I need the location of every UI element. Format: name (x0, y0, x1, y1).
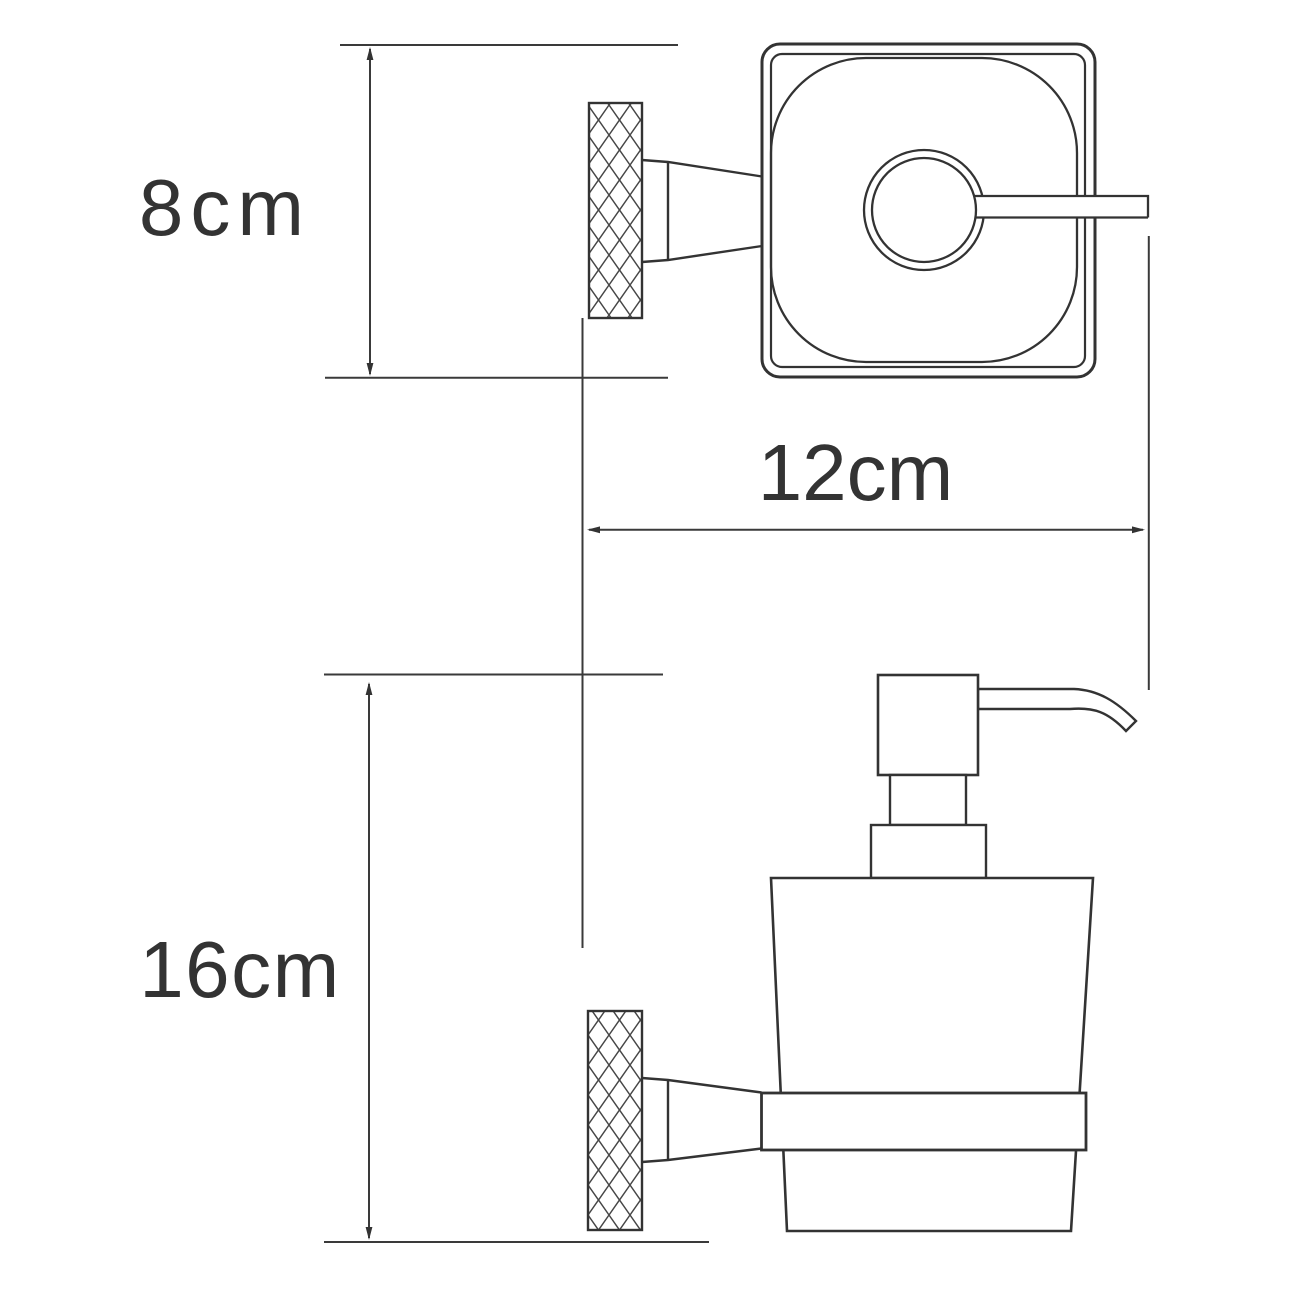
svg-text:12cm: 12cm (758, 428, 954, 517)
svg-text:8cm: 8cm (139, 163, 311, 252)
svg-text:16cm: 16cm (139, 925, 341, 1014)
